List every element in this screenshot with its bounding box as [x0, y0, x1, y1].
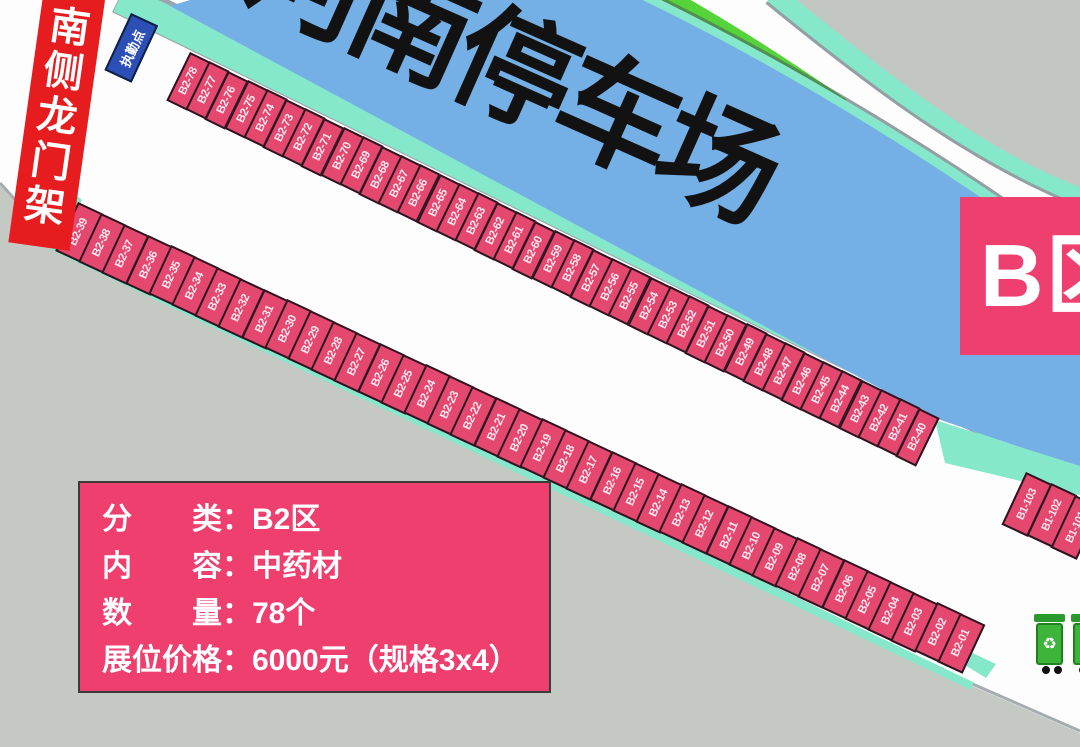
recycle-icon: ♻ [1042, 634, 1056, 654]
market-zone-map: 河南停车场 B2-78B2-77B2-76B2-75B2-74B2-73B2-7… [0, 0, 1080, 747]
recycle-bin: ♻ [1073, 614, 1080, 674]
bin-wheels [1036, 666, 1063, 674]
zone-info-panel: 分 类：B2区 内 容：中药材 数 量：78个 展位价格：6000元（规格3x4… [78, 481, 551, 693]
info-price: 展位价格：6000元（规格3x4） [102, 637, 549, 684]
bin-lid [1071, 614, 1080, 622]
info-category: 分 类：B2区 [102, 496, 549, 543]
recycle-bin: ♻ [1036, 614, 1063, 674]
stall-label: B1-101 [1063, 510, 1080, 545]
recycle-bins: ♻ ♻ [1036, 614, 1080, 698]
info-quantity: 数 量：78个 [102, 590, 549, 637]
info-content: 内 容：中药材 [102, 543, 549, 590]
bin-wheels [1073, 666, 1080, 674]
stall-label: B2-01 [949, 628, 972, 659]
zone-b-badge: B区 [960, 197, 1080, 355]
bin-lid [1034, 614, 1065, 622]
